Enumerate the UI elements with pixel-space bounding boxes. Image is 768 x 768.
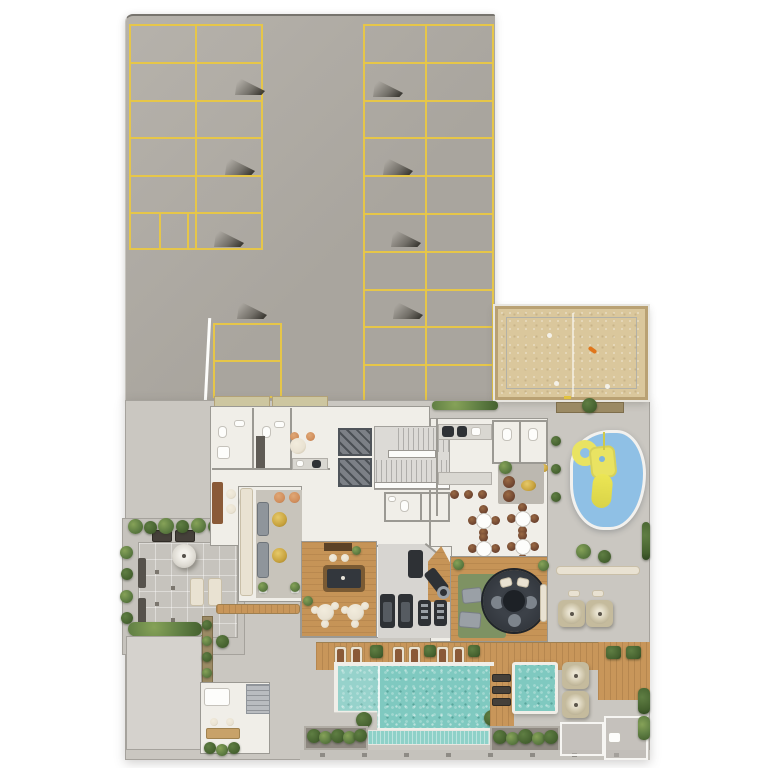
plant: [544, 730, 558, 744]
parking-line-v: [159, 212, 161, 250]
stool: [210, 718, 218, 726]
plant: [538, 560, 549, 571]
stair-landing: [388, 450, 436, 458]
plant: [453, 559, 464, 570]
plant: [204, 742, 216, 754]
dumbbell-rack: [418, 600, 431, 626]
parking-line-h: [363, 289, 494, 291]
armchair: [289, 492, 300, 503]
side-table: [272, 512, 287, 527]
office-chair: [226, 489, 236, 499]
outdoor-bench: [216, 604, 300, 614]
treadmill: [380, 594, 395, 628]
plant: [216, 635, 229, 648]
wall: [519, 420, 521, 464]
parasol: [562, 662, 589, 689]
chair: [491, 544, 500, 553]
elevator-shaft: [338, 458, 372, 487]
parking-line-h: [129, 212, 263, 214]
round-table: [501, 588, 527, 614]
parking-lot: [125, 14, 495, 402]
dark-lounger: [492, 674, 511, 682]
bar-counter: [438, 472, 492, 485]
toilet: [528, 428, 538, 441]
chair: [351, 620, 359, 628]
parking-line-h: [129, 137, 263, 139]
ottoman: [461, 587, 482, 604]
sun-lounger: [190, 578, 204, 606]
sink: [471, 427, 481, 436]
plant: [576, 544, 591, 559]
treadmill-belt: [383, 602, 392, 622]
table: [476, 541, 492, 557]
service-table: [204, 688, 230, 706]
side-table: [272, 548, 287, 563]
bench: [138, 558, 146, 588]
cooktop: [312, 460, 321, 468]
plant: [551, 492, 561, 502]
plant: [493, 730, 507, 744]
treadmill-belt: [401, 602, 410, 622]
plant: [352, 546, 361, 555]
toilet: [400, 500, 409, 512]
dark-lounger: [492, 698, 511, 706]
deck-planter: [424, 645, 436, 657]
sun-lounger: [592, 590, 604, 597]
toy-white: [554, 381, 559, 386]
deck-planter: [606, 646, 621, 659]
cabinet: [256, 436, 265, 468]
plant: [144, 521, 157, 534]
parking-line-h: [129, 62, 263, 64]
parking-line-h: [363, 326, 494, 328]
paver-joint: [155, 570, 159, 574]
pouf: [508, 614, 521, 627]
paver-joint: [155, 602, 159, 606]
games-counter: [324, 543, 352, 551]
table: [515, 539, 531, 555]
site-plan-render: [0, 0, 768, 768]
hedge: [638, 688, 650, 714]
plant: [120, 590, 133, 603]
dumbbells: [437, 604, 444, 622]
plant: [319, 731, 332, 744]
stool: [341, 554, 349, 562]
parking-line-h: [129, 175, 263, 177]
chair: [530, 514, 539, 523]
cafe-set: [341, 598, 371, 628]
hedge: [432, 401, 498, 410]
utility-unit: [246, 684, 270, 714]
parking-line-h: [129, 24, 263, 26]
plant: [202, 620, 212, 630]
plant: [216, 744, 228, 756]
toy-white: [547, 333, 552, 338]
sink: [274, 421, 285, 428]
plant: [202, 652, 212, 662]
plant: [598, 550, 611, 563]
hedge: [128, 622, 202, 636]
table: [317, 604, 334, 621]
toy-yellow: [564, 396, 571, 399]
dumbbells: [421, 604, 428, 622]
parasol: [558, 600, 585, 627]
coffee-table: [521, 480, 536, 491]
plant: [202, 636, 212, 646]
deck-planter: [626, 646, 641, 659]
gym-bench: [408, 550, 423, 578]
chair: [530, 542, 539, 551]
cafe-set: [311, 598, 341, 628]
terrace-bench: [556, 566, 640, 575]
armchair: [503, 490, 515, 502]
pool-lane-line: [378, 666, 380, 728]
meeting-table: [290, 438, 306, 454]
parasol: [562, 691, 589, 718]
service-pad: [126, 636, 202, 750]
plant: [551, 436, 561, 446]
wall: [252, 408, 254, 470]
sun-lounger: [568, 590, 580, 597]
plant: [303, 596, 313, 606]
chair: [321, 620, 329, 628]
parking-line-h: [363, 364, 494, 366]
parking-line-h: [129, 248, 263, 250]
dark-lounger: [492, 686, 511, 694]
hedge: [642, 522, 650, 560]
parasol: [586, 600, 613, 627]
plant: [228, 742, 240, 754]
elevator-shaft: [338, 428, 372, 456]
plant: [191, 518, 206, 533]
appliance: [457, 426, 467, 437]
plant: [290, 582, 300, 592]
parking-bank-lower: [213, 323, 282, 398]
parking-line-h: [363, 62, 494, 64]
plant: [128, 519, 143, 534]
office-chair: [226, 504, 236, 514]
plant: [551, 464, 561, 474]
parking-line-h: [363, 175, 494, 177]
shower: [217, 446, 230, 459]
plant: [120, 546, 133, 559]
chair: [491, 516, 500, 525]
appliance: [442, 426, 454, 437]
pool-shallow-shelf: [338, 666, 378, 710]
toy-white: [605, 384, 610, 389]
equipment-box: [608, 732, 621, 743]
credenza: [540, 584, 547, 622]
gym-wheel: [437, 586, 450, 599]
toilet: [218, 426, 227, 438]
spa-pool: [515, 665, 555, 711]
sink: [234, 420, 245, 427]
stool: [226, 718, 234, 726]
plant: [158, 518, 174, 534]
parking-line-h: [363, 137, 494, 139]
sink: [296, 460, 304, 467]
bar-stool: [478, 490, 487, 499]
white-parasol: [172, 544, 196, 568]
parking-line-h: [215, 360, 280, 362]
plant: [121, 568, 133, 580]
armchair: [503, 476, 515, 488]
parking-line-h: [363, 100, 494, 102]
court-center-line: [572, 313, 574, 397]
deck-planter: [370, 645, 383, 658]
parking-line-h: [363, 251, 494, 253]
plant: [258, 582, 268, 592]
plant: [354, 729, 367, 742]
billiards-table: [323, 565, 365, 592]
table: [515, 511, 531, 527]
bar-stool: [464, 490, 473, 499]
parking-line-v: [187, 212, 189, 250]
toilet: [502, 428, 512, 441]
plant: [499, 461, 512, 474]
deck-planter: [468, 645, 480, 657]
sink: [388, 496, 396, 502]
table: [476, 513, 492, 529]
bench-seat: [240, 488, 253, 596]
plant: [518, 729, 533, 744]
treadmill: [398, 594, 413, 628]
play-seat: [599, 456, 605, 462]
plant: [582, 398, 597, 413]
chair: [306, 432, 315, 441]
paver-joint: [171, 586, 175, 590]
plant: [532, 732, 545, 745]
wall: [420, 492, 422, 522]
plant: [506, 732, 519, 745]
parking-line-h: [129, 100, 263, 102]
table: [347, 604, 364, 621]
plant: [202, 668, 212, 678]
armchair: [274, 492, 285, 503]
sofa: [257, 502, 269, 536]
ottoman: [458, 611, 481, 629]
parking-line-h: [363, 213, 494, 215]
sofa: [257, 542, 269, 578]
service-counter: [206, 728, 240, 739]
plant: [176, 520, 189, 533]
parking-line-h: [363, 24, 494, 26]
hedge: [638, 716, 650, 740]
office-desk: [212, 482, 223, 524]
play-pole: [603, 432, 605, 450]
overflow-trough: [367, 730, 490, 745]
stool: [329, 554, 337, 562]
bar-stool: [450, 490, 459, 499]
billiards-balls: [341, 576, 345, 580]
sand-court: [495, 306, 648, 400]
sun-lounger: [208, 578, 222, 606]
service-room: [560, 722, 604, 756]
dumbbell-rack: [434, 600, 447, 626]
